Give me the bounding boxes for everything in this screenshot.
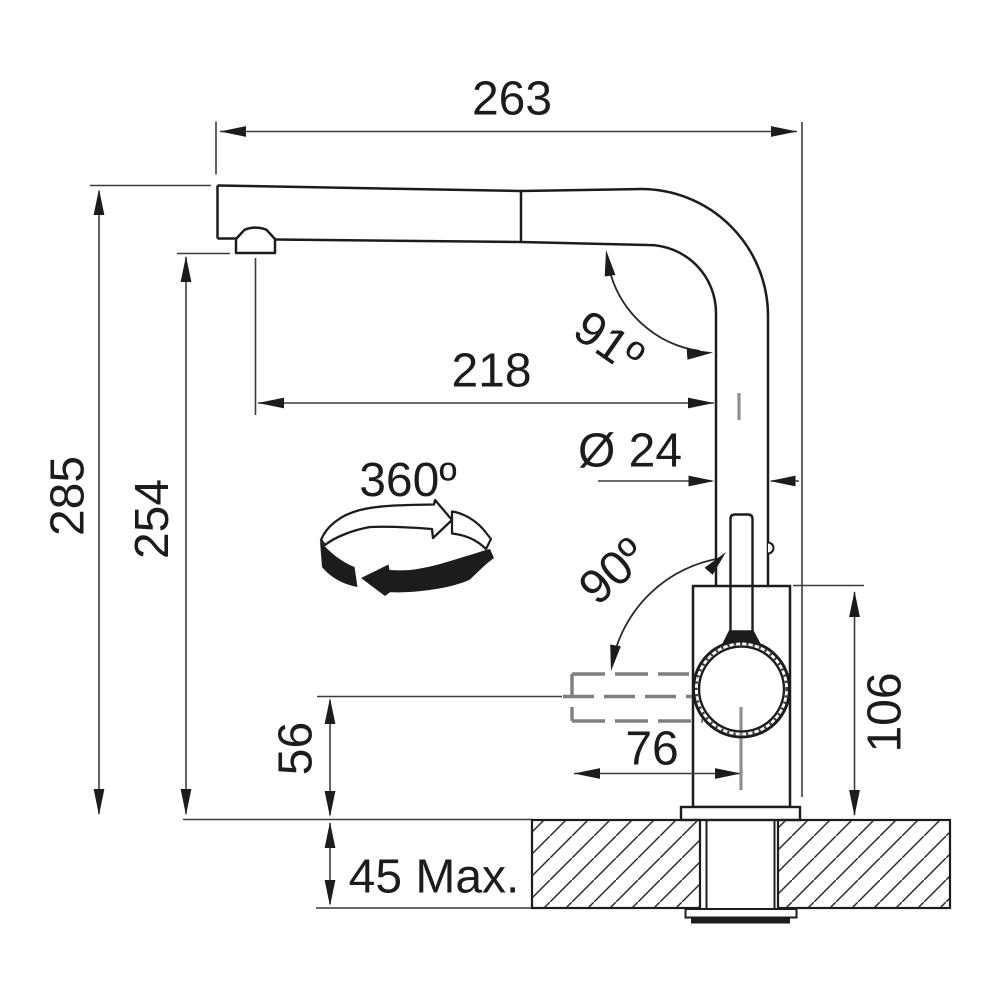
svg-text:106: 106 [859,672,912,752]
svg-text:263: 263 [472,73,552,126]
svg-text:285: 285 [42,456,95,536]
svg-text:254: 254 [126,479,179,559]
svg-text:76: 76 [625,723,678,776]
svg-text:Ø 24: Ø 24 [578,425,682,478]
svg-text:45 Max.: 45 Max. [349,851,520,904]
svg-text:360º: 360º [359,454,457,507]
svg-text:218: 218 [451,345,531,398]
svg-text:56: 56 [270,722,323,775]
